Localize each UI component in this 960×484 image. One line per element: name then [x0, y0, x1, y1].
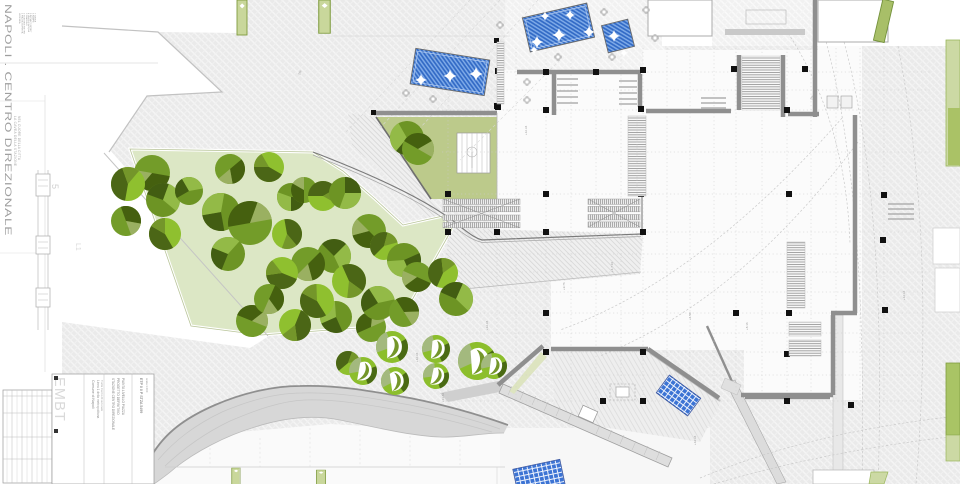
svg-text:L1: L1: [74, 243, 81, 251]
svg-text:+12.34: +12.34: [693, 435, 697, 445]
svg-text:EMBT: EMBT: [51, 377, 67, 422]
svg-text:+11.64: +11.64: [441, 393, 445, 402]
svg-text:PIANTA LIVELLO PIAZZA: PIANTA LIVELLO PIAZZA: [121, 378, 125, 416]
svg-text:7 CAVEA: 7 CAVEA: [34, 13, 37, 23]
svg-text:NAPOLI . CENTRO DIREZIONALE: NAPOLI . CENTRO DIREZIONALE: [2, 4, 13, 236]
svg-text:+12.34: +12.34: [485, 320, 489, 330]
svg-text:+4.7.16: +4.7.16: [610, 262, 614, 272]
svg-text:Linea 1 della metropolitana: Linea 1 della metropolitana: [96, 380, 100, 419]
svg-text:LA CAVEA DELLA STAZIONE: LA CAVEA DELLA STAZIONE: [13, 116, 17, 166]
svg-text:+12.34: +12.34: [902, 290, 906, 300]
svg-text:NEL CUORE DELLA CITTA: NEL CUORE DELLA CITTA: [17, 116, 21, 161]
svg-text:PROGETTO DEFINITIVO: PROGETTO DEFINITIVO: [116, 378, 120, 415]
svg-text:STAZIONE CENTRO DIREZIONALE: STAZIONE CENTRO DIREZIONALE: [111, 378, 115, 430]
svg-text:+9.76: +9.76: [562, 282, 566, 290]
svg-text:Tratta Centro Direzionale: Tratta Centro Direzionale: [100, 380, 104, 412]
svg-text:+12.34: +12.34: [415, 352, 419, 362]
svg-text:+8.16: +8.16: [745, 322, 749, 330]
svg-text:Comune di Napoli: Comune di Napoli: [91, 380, 95, 409]
svg-text:scala 1:200: scala 1:200: [145, 378, 149, 393]
svg-text:ETP 0 0 P STZA 5499: ETP 0 0 P STZA 5499: [139, 378, 143, 413]
svg-text:+12.34: +12.34: [524, 125, 528, 135]
svg-text:+4.50: +4.50: [688, 312, 692, 320]
svg-text:5: 5: [50, 184, 60, 189]
